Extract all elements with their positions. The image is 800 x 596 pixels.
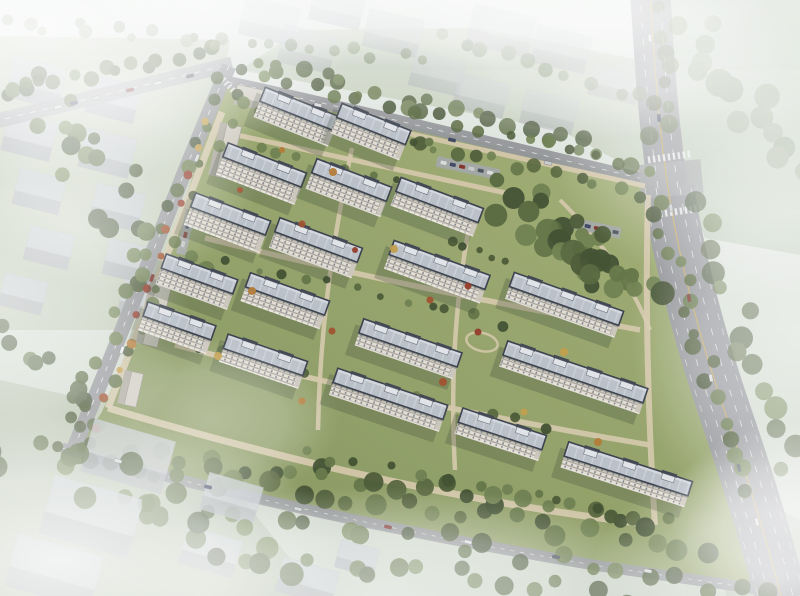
- aerial-rendering-canvas: [0, 0, 800, 596]
- fog-layer: [0, 0, 800, 596]
- aerial-architectural-rendering: [0, 0, 800, 596]
